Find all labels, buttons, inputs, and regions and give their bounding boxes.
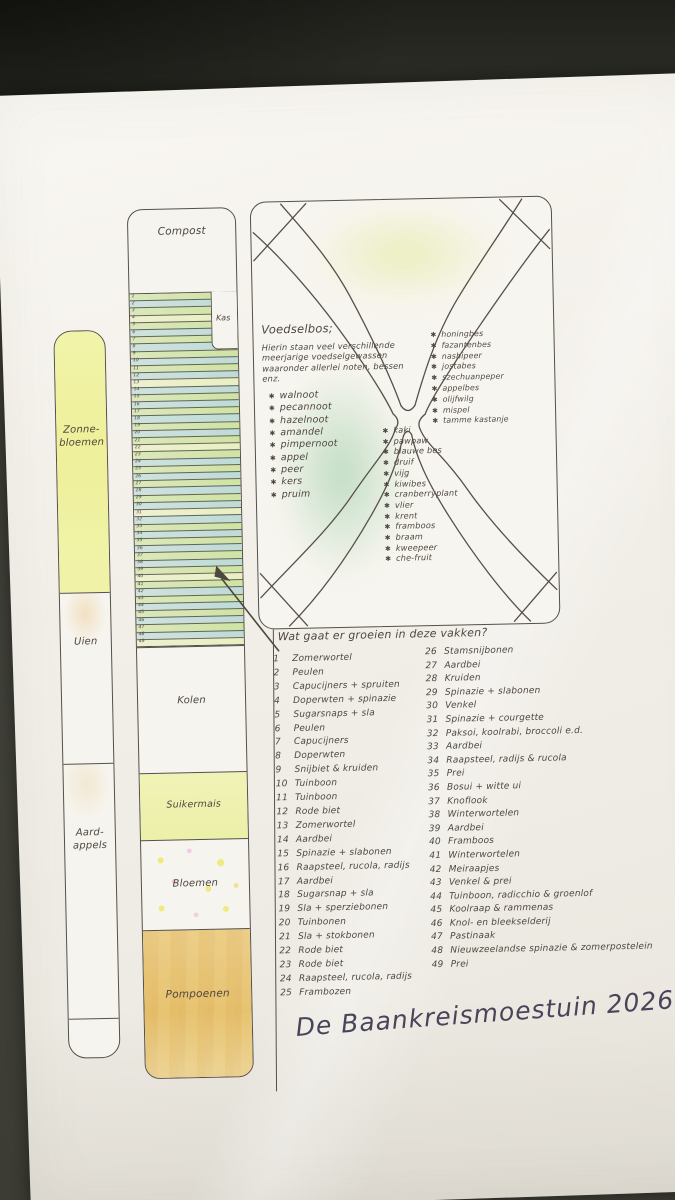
plot-crop-label: Zomerwortel (296, 819, 356, 834)
plot-number: 47 (431, 931, 444, 945)
bullet-icon: ✱ (269, 404, 275, 415)
crop-row-number: 27 (135, 481, 141, 487)
shrub-item-label: szechuanpeper (442, 372, 504, 383)
plot-crop-label: Winterwortelen (448, 848, 520, 863)
berry-item-label: krent (395, 511, 418, 521)
plot-crop-label: Winterwortelen (447, 807, 519, 822)
berry-item-label: kaki (393, 425, 411, 435)
plot-number: 17 (278, 876, 291, 890)
berry-item-label: druif (394, 458, 414, 468)
plot-crop-label: Sla + stokbonen (298, 929, 375, 945)
plot-crop-label: Aardbei (444, 659, 480, 673)
bed-label-kolen: Kolen (138, 694, 245, 707)
plot-crop-label: Prei (451, 958, 469, 972)
plot-crop-label: Aardbei (296, 833, 332, 848)
crop-row-number: 18 (134, 416, 140, 422)
crop-row-number: 13 (133, 380, 139, 386)
plot-number: 7 (275, 737, 288, 751)
plot-crop-label: Tuinboon (295, 791, 338, 806)
plot-number: 25 (280, 987, 293, 1001)
plot-crop-label: Peulen (294, 722, 326, 737)
crop-row-number: 33 (136, 524, 142, 530)
plot-number: 42 (430, 863, 443, 877)
crop-row-number: 14 (134, 387, 140, 393)
plot-number: 4 (274, 695, 287, 709)
plot-number: 11 (276, 792, 289, 806)
plot-number: 16 (277, 862, 290, 876)
plot-number: 22 (279, 945, 292, 959)
plot-item-25: 25Frambozen (280, 984, 430, 1001)
bed-section-uien: Uien (60, 592, 114, 764)
plot-crop-label: Capucijners (294, 735, 349, 750)
plot-number: 9 (275, 764, 288, 778)
voedselbos-berries-list: ✱kaki✱pawpaw✱blauwe bes✱druif✱vijg✱kiwib… (382, 424, 505, 566)
crop-row-number: 43 (138, 596, 144, 602)
plot-crop-label: Rode biet (298, 944, 343, 959)
plot-number: 41 (429, 850, 442, 864)
plot-number: 39 (429, 823, 442, 837)
bullet-icon: ✱ (432, 406, 438, 416)
plot-crop-label: Zomerwortel (292, 652, 352, 667)
crop-row-number: 10 (133, 358, 139, 364)
plot-crop-label: Venkel (445, 700, 476, 714)
plot-crop-label: Aardbei (297, 875, 333, 890)
voedselbos-shrubs-list: ✱honingbes✱fazantenbes✱nashipeer✱jostabe… (430, 328, 552, 428)
plot-number: 34 (427, 755, 440, 769)
bed-section-bloemen: Bloemen (141, 838, 250, 930)
plot-number: 33 (427, 741, 440, 755)
shrub-item-label: honingbes (441, 329, 483, 340)
crop-row-number: 6 (132, 330, 135, 336)
crop-row-number: 3 (132, 308, 135, 314)
plot-number: 40 (429, 836, 442, 850)
plot-crop-label: Tuinbonen (298, 916, 347, 931)
crop-row-number: 12 (133, 373, 139, 379)
plot-number: 27 (425, 660, 438, 674)
tree-item-label: walnoot (279, 390, 318, 402)
plot-crop-label: Raapsteel, radijs & rucola (446, 752, 567, 768)
bullet-icon: ✱ (270, 441, 276, 452)
plot-number: 26 (425, 646, 438, 660)
bullet-icon: ✱ (269, 392, 275, 403)
tree-item-label: pimpernoot (281, 438, 338, 450)
plot-number: 30 (426, 700, 439, 714)
crop-row-number: 23 (135, 452, 141, 458)
bed-section-aardappels: Aard- appels (63, 763, 118, 1019)
bullet-icon: ✱ (270, 465, 276, 476)
crop-row-number: 39 (137, 567, 143, 573)
shrub-item-label: fazantenbes (441, 340, 491, 351)
crop-row-number: 28 (136, 488, 142, 494)
plot-number: 31 (426, 714, 439, 728)
plot-number: 37 (428, 795, 441, 809)
bullet-icon: ✱ (270, 478, 276, 489)
plot-number: 29 (426, 687, 439, 701)
plot-crop-label: Knoflook (447, 794, 488, 808)
photo-background: Zonne- bloemen Uien Aard- appels Compost… (0, 0, 675, 1200)
crop-row-number: 9 (133, 351, 136, 357)
tree-item-label: kers (281, 476, 302, 488)
plot-number: 38 (428, 809, 441, 823)
crop-row-number: 19 (134, 423, 140, 429)
crop-row-number: 45 (138, 611, 144, 617)
plot-list-right-column: 26Stamsnijbonen27Aardbei28Kruiden29Spina… (425, 641, 675, 972)
bed-label-zonnebloemen: Zonne- bloemen (56, 423, 107, 450)
plot-number: 10 (276, 778, 289, 792)
plot-number: 14 (277, 834, 290, 848)
plot-crop-label: Kruiden (445, 672, 481, 686)
bullet-icon: ✱ (385, 534, 391, 544)
crop-row-number: 25 (135, 467, 141, 473)
bed-section-suikermais: Suikermais (140, 771, 248, 840)
crop-row-number: 36 (137, 546, 143, 552)
crop-row-number: 35 (137, 539, 143, 545)
plot-list-left-column: 1Zomerwortel2Peulen3Capucijners + spruit… (273, 650, 430, 1001)
crop-row-number: 16 (134, 402, 140, 408)
plot-number: 44 (430, 891, 443, 905)
bullet-icon: ✱ (385, 545, 391, 555)
crop-row-number: 49 (139, 639, 145, 645)
crop-row-number: 44 (138, 603, 144, 609)
bullet-icon: ✱ (431, 363, 437, 373)
crop-row-number: 22 (135, 445, 141, 451)
plot-number: 24 (280, 973, 293, 987)
bullet-icon: ✱ (430, 331, 436, 341)
plot-number: 45 (430, 904, 443, 918)
crop-row-number: 37 (137, 553, 143, 559)
plot-crop-label: Bosui + witte ui (447, 780, 522, 795)
bed-label-suikermais: Suikermais (140, 798, 247, 811)
plot-crop-label: Raapsteel, rucola, radijs (299, 970, 413, 986)
crop-row-number: 30 (136, 503, 142, 509)
plot-number: 15 (277, 848, 290, 862)
plot-number: 28 (426, 673, 439, 687)
bed-label-compost: Compost (128, 224, 235, 238)
bullet-icon: ✱ (271, 490, 277, 501)
bullet-icon: ✱ (270, 453, 276, 464)
bullet-icon: ✱ (431, 342, 437, 352)
bullet-icon: ✱ (385, 555, 391, 565)
plot-crop-label: Snijbiet & kruiden (294, 762, 378, 778)
shrub-item-label: jostabes (442, 361, 476, 372)
plot-crop-label: Peulen (292, 666, 324, 681)
plot-number: 20 (279, 917, 292, 931)
bullet-icon: ✱ (384, 513, 390, 523)
plot-number: 8 (275, 750, 288, 764)
plot-number: 2 (273, 667, 286, 681)
berry-item-label: vijg (394, 468, 409, 478)
garden-plan-drawing: Zonne- bloemen Uien Aard- appels Compost… (0, 0, 675, 1200)
plot-number: 43 (430, 877, 443, 891)
plot-crop-label: Meiraapjes (449, 862, 500, 877)
plot-number: 6 (275, 723, 288, 737)
crop-row-number: 46 (138, 618, 144, 624)
bed-section-tip (69, 1018, 120, 1057)
bullet-icon: ✱ (383, 459, 389, 469)
tree-item-label: appel (281, 451, 309, 463)
kas-box: Kas (211, 291, 239, 350)
plot-number: 23 (280, 959, 293, 973)
crop-row-number: 41 (138, 582, 144, 588)
plot-number: 49 (432, 959, 445, 973)
crop-row-number: 47 (138, 625, 144, 631)
voedselbos-intro: Hierin staan veel verschillende meerjari… (262, 339, 413, 383)
crop-row-number: 31 (136, 510, 142, 516)
bullet-icon: ✱ (432, 396, 438, 406)
plot-crop-label: Spinazie + slabonen (445, 685, 541, 701)
bed-label-aardappels: Aard- appels (65, 826, 116, 853)
shrub-item-label: mispel (443, 405, 470, 415)
tree-item-label: hazelnoot (280, 414, 329, 426)
plot-number: 35 (428, 768, 441, 782)
plot-crop-label: Sla + sperziebonen (297, 901, 388, 917)
shrub-item-label: olijfwilg (443, 394, 474, 404)
plot-crop-label: Pastinaak (450, 930, 496, 945)
plot-crop-label: Framboos (448, 835, 494, 850)
berry-item-label: framboos (395, 521, 435, 532)
berry-item-label: cranberryplant (395, 489, 458, 500)
crop-row-number: 1 (132, 294, 135, 300)
berry-item-label: vlier (395, 500, 414, 510)
plot-number: 18 (278, 889, 291, 903)
bed-section-zonnebloemen: Zonne- bloemen (54, 331, 109, 593)
plot-crop-label: Tuinboon (295, 777, 338, 792)
bed-section-pompoenen: Pompoenen (143, 928, 253, 1079)
plot-crop-label: Doperwten (294, 749, 345, 764)
bullet-icon: ✱ (432, 385, 438, 395)
plot-number: 13 (277, 820, 290, 834)
crop-row-number: 26 (135, 474, 141, 480)
bed-label-bloemen: Bloemen (142, 877, 249, 890)
crop-row-number: 38 (137, 560, 143, 566)
crop-row-number: 32 (136, 517, 142, 523)
plot-crop-label: Raapsteel, rucola, radijs (296, 859, 410, 875)
plot-crop-label: Knol- en bleekselderij (450, 916, 551, 932)
plot-crop-label: Doperwten + spinazie (293, 693, 397, 709)
plot-number: 3 (274, 681, 287, 695)
plot-number: 12 (276, 806, 289, 820)
plot-number: 5 (274, 709, 287, 723)
crop-row-number: 24 (135, 459, 141, 465)
food-forest-diagram: Voedselbos; Hierin staan veel verschille… (250, 195, 561, 629)
bullet-icon: ✱ (383, 448, 389, 458)
bullet-icon: ✱ (384, 523, 390, 533)
plot-number: 1 (273, 653, 286, 667)
berry-item-label: braam (395, 532, 423, 542)
bed-section-compost: Compost (128, 208, 237, 293)
tree-item-label: peer (281, 464, 304, 476)
bullet-icon: ✱ (269, 416, 275, 427)
plot-crop-label: Sugarsnaps + sla (293, 707, 375, 723)
plot-crop-label: Paksoi, koolrabi, broccoli e.d. (446, 725, 583, 741)
tree-item-label: pecannoot (280, 402, 332, 414)
crop-row-number: 42 (138, 589, 144, 595)
crop-row-number: 40 (137, 575, 143, 581)
crop-row-number: 48 (139, 632, 145, 638)
bullet-icon: ✱ (431, 353, 437, 363)
plot-number: 36 (428, 782, 441, 796)
plot-crop-label: Aardbei (448, 822, 484, 836)
tree-item-label: amandel (280, 426, 323, 438)
left-bed-strip: Zonne- bloemen Uien Aard- appels (53, 330, 120, 1059)
voedselbos-title: Voedselbos; (261, 319, 426, 336)
plot-number: 19 (278, 903, 291, 917)
plot-number: 21 (279, 931, 292, 945)
bed-label-uien: Uien (61, 635, 111, 649)
berry-item-label: che-fruit (396, 554, 432, 564)
bullet-icon: ✱ (383, 438, 389, 448)
bed-label-pompoenen: Pompoenen (144, 987, 251, 1001)
bullet-icon: ✱ (384, 491, 390, 501)
bullet-icon: ✱ (269, 428, 275, 439)
crop-row-number: 4 (132, 315, 135, 321)
crop-row-number: 34 (137, 531, 143, 537)
bed-section-kolen: Kolen (137, 645, 247, 773)
tree-item-label: pruim (282, 488, 311, 500)
berry-item-label: blauwe bes (394, 446, 442, 457)
plot-crop-label: Rode biet (295, 805, 340, 820)
crop-row-number: 5 (132, 323, 135, 329)
plot-crop-label: Aardbei (446, 740, 482, 754)
bullet-icon: ✱ (383, 470, 389, 480)
plot-crop-label: Venkel & prei (449, 876, 512, 891)
bullet-icon: ✱ (384, 502, 390, 512)
plot-crop-label: Frambozen (299, 986, 351, 1001)
crop-row-number: 20 (134, 431, 140, 437)
plot-crop-label: Rode biet (299, 958, 344, 973)
bullet-icon: ✱ (431, 374, 437, 384)
crop-row-number: 8 (133, 344, 136, 350)
plot-number: 48 (431, 945, 444, 959)
kas-label: Kas (216, 313, 231, 322)
crop-row-number: 17 (134, 409, 140, 415)
shrub-item-label: appelbes (442, 383, 479, 394)
plot-crop-label: Prei (447, 768, 465, 782)
plot-number: 46 (431, 918, 444, 932)
shrub-item-label: nashipeer (442, 351, 482, 362)
crop-row-number: 2 (132, 301, 135, 307)
crop-row-number: 11 (133, 366, 139, 372)
crop-row-number: 21 (135, 438, 141, 444)
bullet-icon: ✱ (382, 427, 388, 437)
crop-row-number: 29 (136, 495, 142, 501)
plot-number: 32 (427, 728, 440, 742)
bullet-icon: ✱ (384, 480, 390, 490)
crop-row-number: 7 (132, 337, 135, 343)
plot-crop-label: Stamsnijbonen (444, 644, 514, 659)
crop-row-number: 15 (134, 394, 140, 400)
